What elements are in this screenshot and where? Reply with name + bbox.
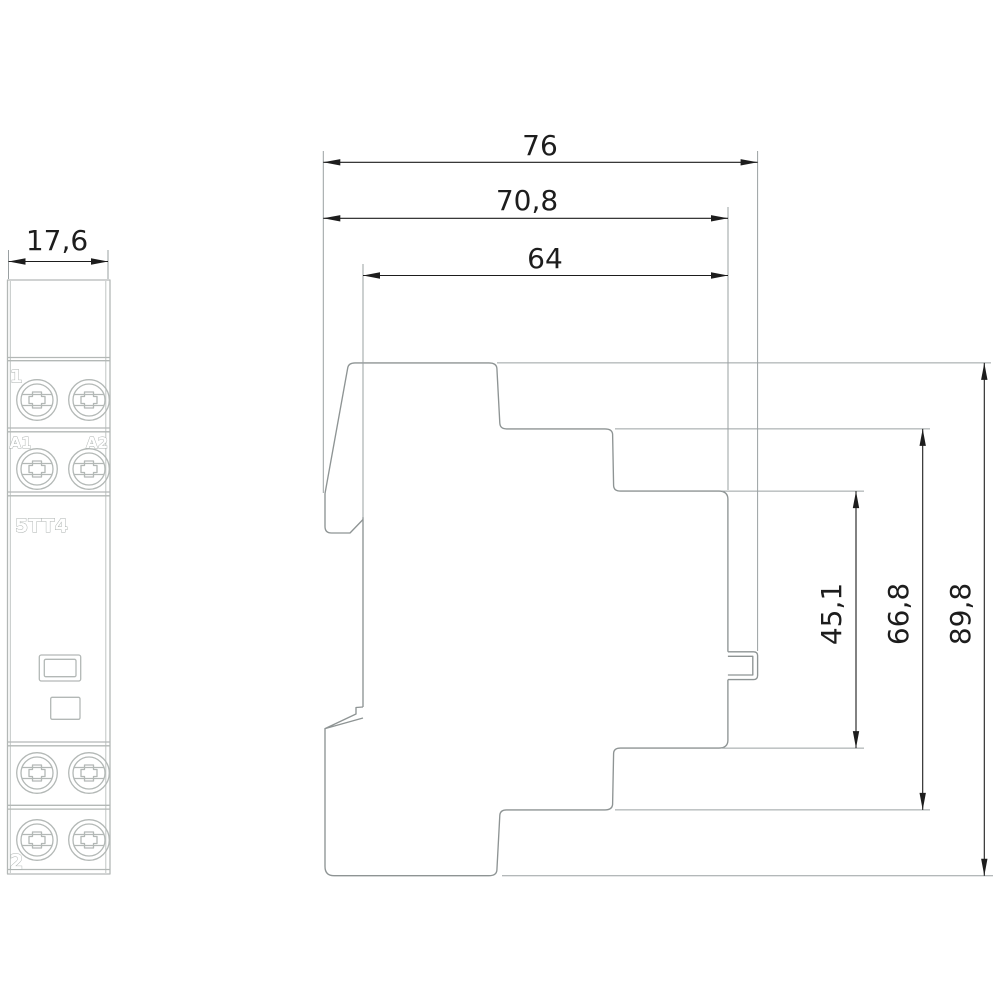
dim-label-76: 76	[522, 129, 558, 162]
extension-lines	[323, 151, 993, 876]
screw-terminal	[17, 449, 58, 490]
dim-label-89-8: 89,8	[944, 583, 977, 645]
dim-upper-body-depth: 70,8	[323, 184, 728, 222]
arrowhead	[9, 258, 26, 264]
screw-terminal	[69, 820, 110, 861]
dim-label-17-6: 17,6	[26, 224, 88, 257]
dimension-drawing: 1 A1 A2 5TT4 2 17,6	[0, 0, 1000, 1000]
actuator-square	[51, 697, 80, 719]
arrowhead	[920, 793, 926, 810]
terminal-label-2: 2	[10, 850, 24, 874]
coil-label-a1: A1	[10, 434, 32, 452]
terminal-label-1: 1	[10, 367, 23, 388]
screw-terminal	[17, 380, 58, 421]
coil-label-a2: A2	[86, 434, 108, 452]
arrowhead	[981, 363, 987, 380]
dim-label-66-8: 66,8	[882, 583, 915, 645]
release-latch	[325, 707, 363, 729]
dim-label-70-8: 70,8	[496, 184, 558, 217]
side-outline-lower	[325, 680, 728, 876]
side-view: 76 70,8 64 45,1 66,8	[323, 129, 993, 876]
dim-label-45-1: 45,1	[815, 583, 848, 645]
screw-terminal	[17, 753, 58, 794]
dim-label-64: 64	[527, 242, 563, 275]
arrowhead	[363, 272, 380, 278]
arrowhead	[91, 258, 108, 264]
front-view: 1 A1 A2 5TT4 2 17,6	[8, 224, 111, 874]
din-clip-lug	[728, 652, 758, 680]
arrowhead	[711, 272, 728, 278]
arrowhead	[711, 215, 728, 221]
front-housing-outline	[8, 280, 111, 874]
screw-terminal	[69, 449, 110, 490]
arrowhead	[853, 731, 859, 748]
dim-rail-recess-height: 45,1	[815, 491, 859, 748]
screw-terminal	[69, 753, 110, 794]
indicator-window-inner	[44, 659, 76, 676]
arrowhead	[853, 491, 859, 508]
dimension-drawing-page: 1 A1 A2 5TT4 2 17,6	[0, 0, 1000, 1000]
arrowhead	[920, 429, 926, 446]
arrowhead	[323, 159, 340, 165]
dim-front-section-depth: 64	[363, 242, 728, 279]
dim-overall-depth: 76	[323, 129, 757, 166]
screw-terminal	[69, 380, 110, 421]
arrowhead	[981, 859, 987, 876]
dim-mid-section-height: 66,8	[882, 429, 926, 810]
dim-front-width: 17,6	[9, 224, 109, 279]
side-outline-upper	[325, 363, 728, 652]
dim-overall-height: 89,8	[944, 363, 988, 876]
arrowhead	[741, 159, 758, 165]
front-bezel-wedge	[325, 494, 363, 534]
arrowhead	[323, 215, 340, 221]
model-label-5tt4: 5TT4	[15, 515, 68, 537]
